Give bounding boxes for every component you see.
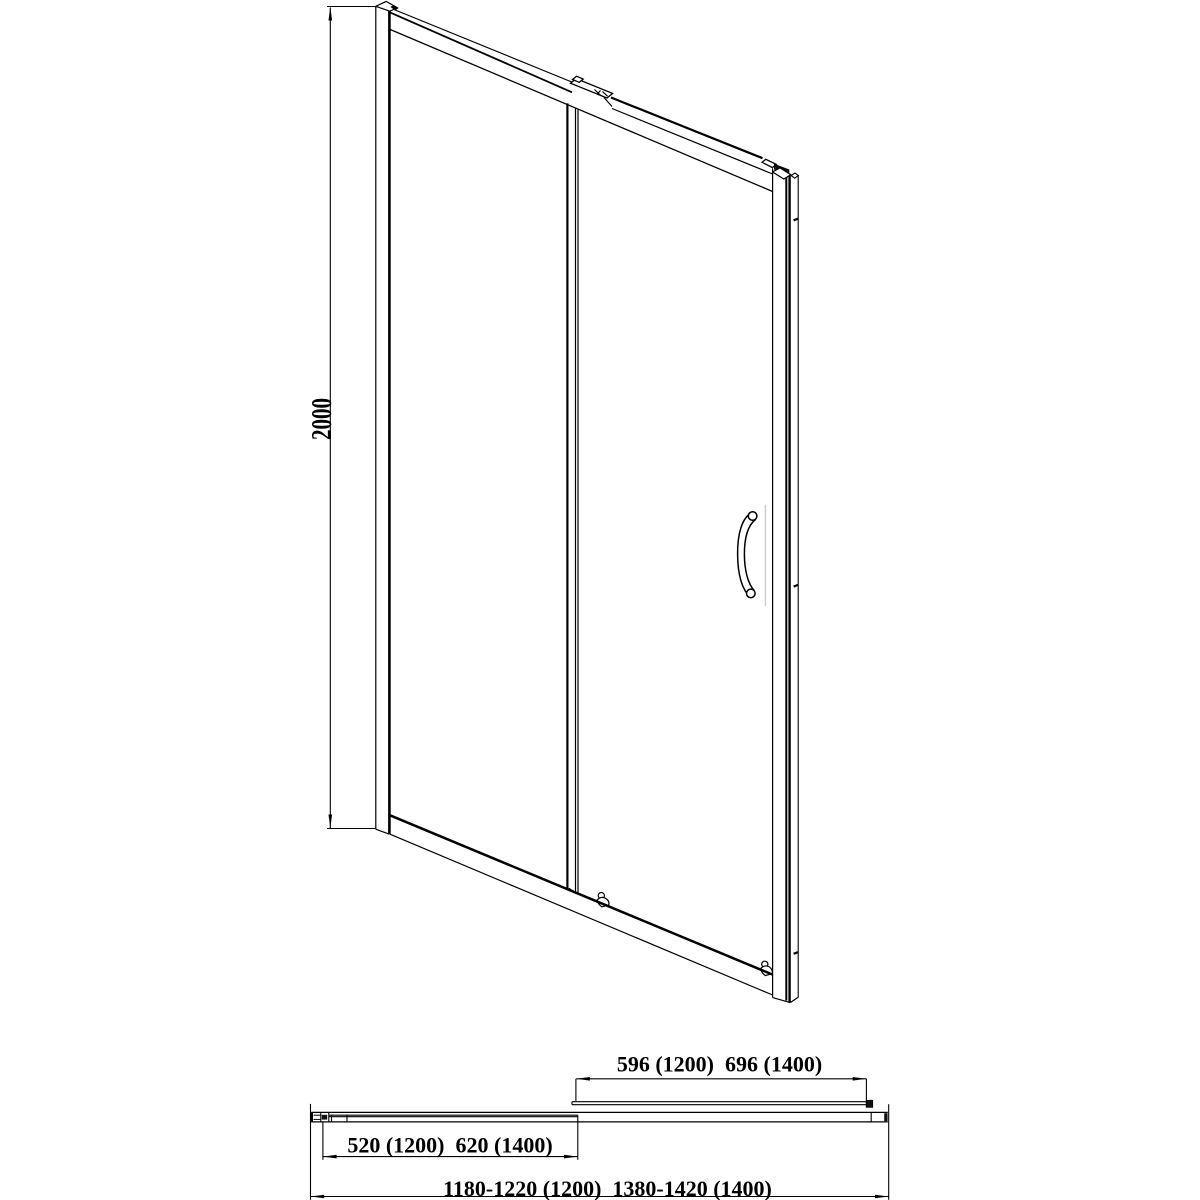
- svg-text:520 (1200) 620 (1400): 520 (1200) 620 (1400): [347, 1133, 552, 1158]
- svg-text:1180-1220 (1200) 1380-1420 (1: 1180-1220 (1200) 1380-1420 (1400): [443, 1176, 772, 1200]
- svg-text:2000: 2000: [307, 398, 338, 440]
- svg-text:596 (1200) 696 (1400): 596 (1200) 696 (1400): [617, 1052, 822, 1077]
